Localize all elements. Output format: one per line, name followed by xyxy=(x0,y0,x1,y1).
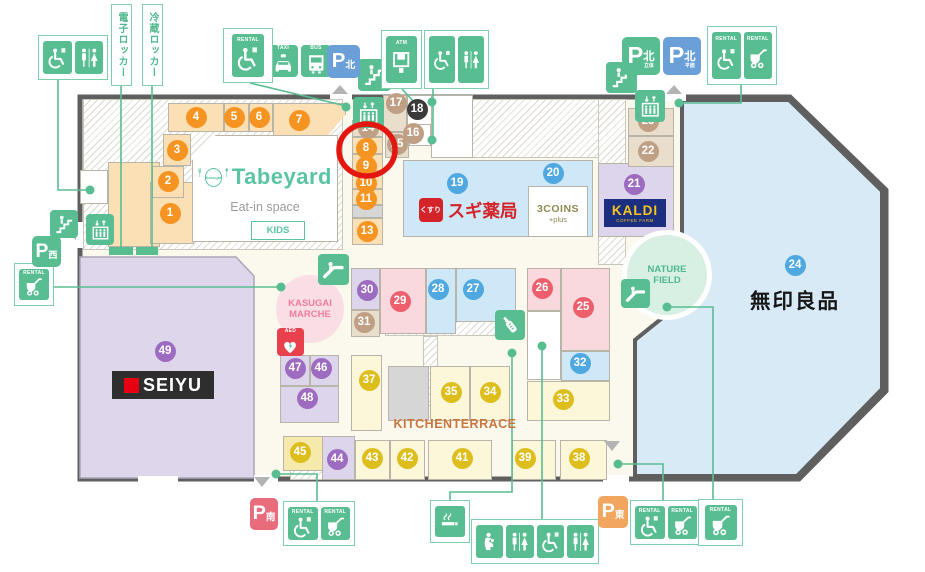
highlight-ring xyxy=(339,124,395,176)
floor-map: KASUGAIMARCHENATUREFIELD1234567148910111… xyxy=(0,0,925,572)
highlight-ring-layer xyxy=(0,0,925,572)
